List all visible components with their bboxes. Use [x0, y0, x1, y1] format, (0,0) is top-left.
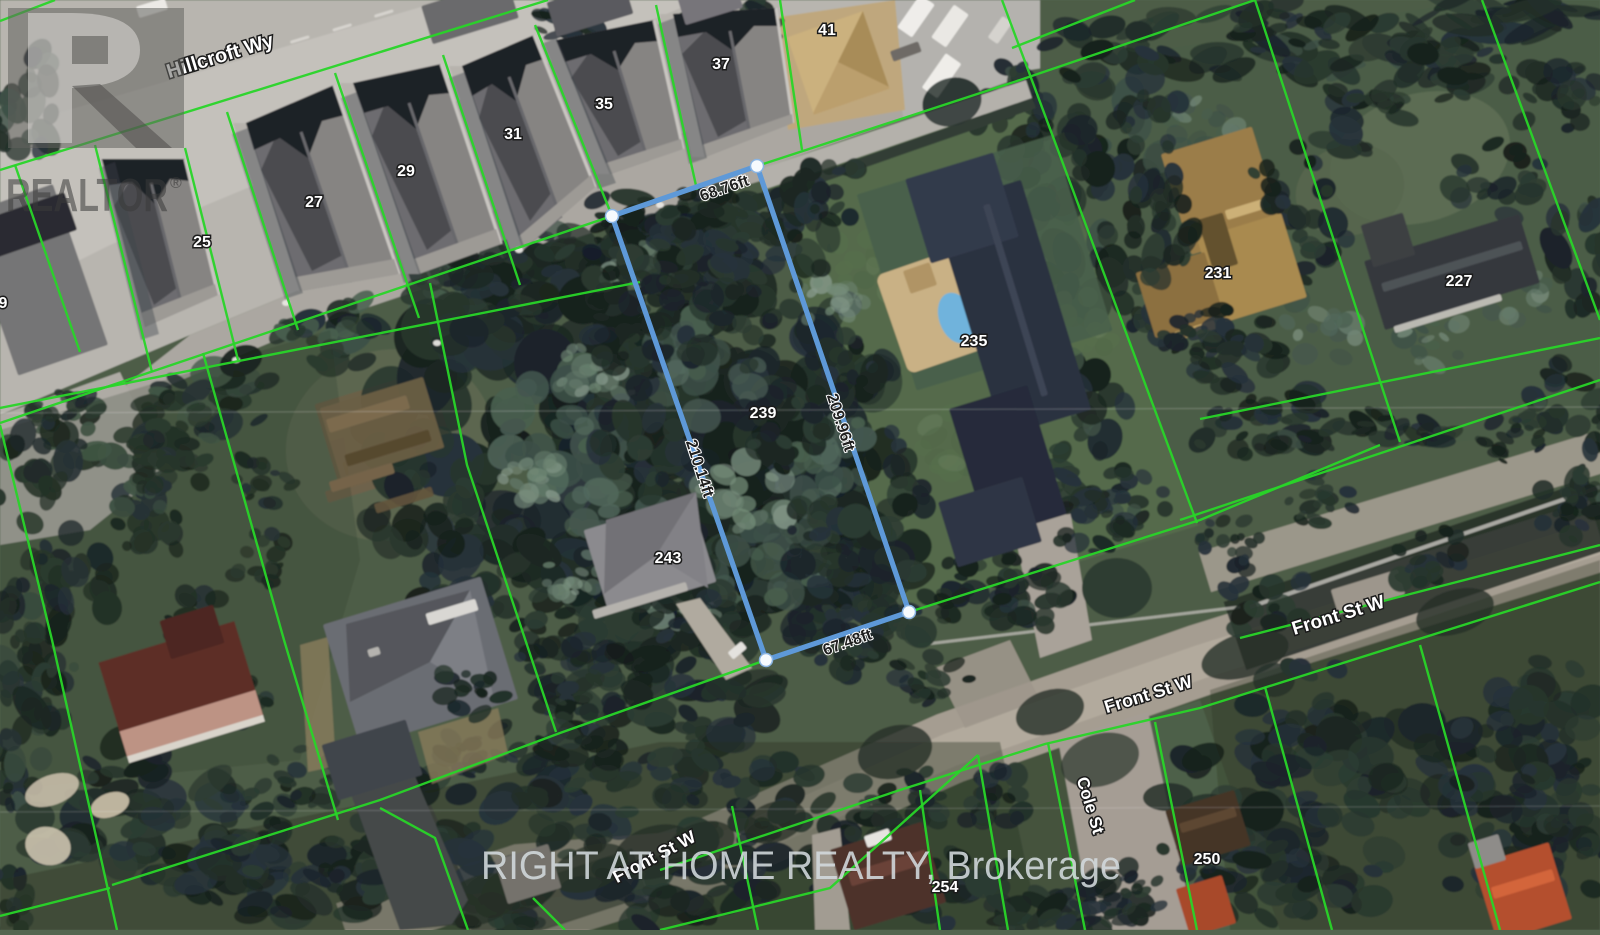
svg-text:41: 41 — [818, 22, 836, 39]
svg-text:250: 250 — [1194, 851, 1221, 868]
svg-text:231: 231 — [1205, 265, 1232, 282]
svg-text:25: 25 — [193, 234, 211, 251]
svg-text:27: 27 — [305, 194, 323, 211]
svg-text:227: 227 — [1446, 273, 1473, 290]
svg-text:9: 9 — [0, 295, 8, 312]
svg-text:239: 239 — [750, 405, 777, 422]
svg-text:243: 243 — [655, 550, 682, 567]
svg-text:31: 31 — [504, 126, 522, 143]
svg-text:37: 37 — [712, 56, 730, 73]
svg-text:35: 35 — [595, 96, 613, 113]
svg-text:REALTOR: REALTOR — [6, 169, 168, 221]
svg-text:®: ® — [170, 175, 182, 192]
svg-text:29: 29 — [397, 163, 415, 180]
svg-text:235: 235 — [961, 333, 988, 350]
svg-text:RIGHT AT HOME REALTY, Brokerag: RIGHT AT HOME REALTY, Brokerage — [481, 844, 1121, 888]
